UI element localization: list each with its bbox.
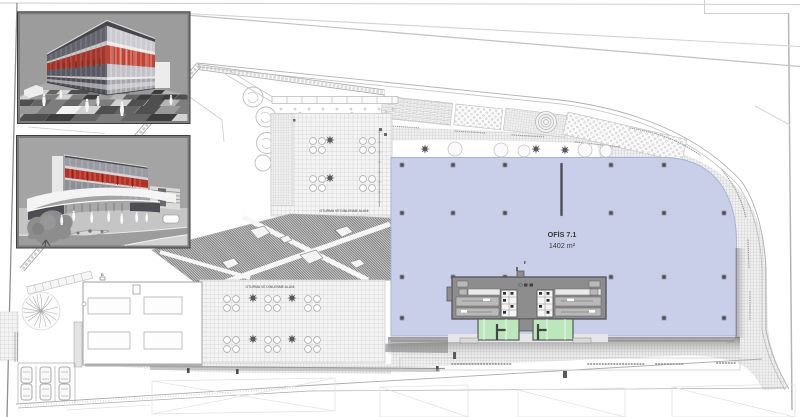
svg-text:OTURMA VE DİNLENME ALANI: OTURMA VE DİNLENME ALANI [320,208,369,213]
svg-text:OFİS 7.1: OFİS 7.1 [548,230,577,239]
svg-text:1402 m²: 1402 m² [549,241,576,250]
svg-text:B: B [101,272,104,277]
svg-text:OTURMA VE DİNLENME ALANI: OTURMA VE DİNLENME ALANI [246,284,295,289]
